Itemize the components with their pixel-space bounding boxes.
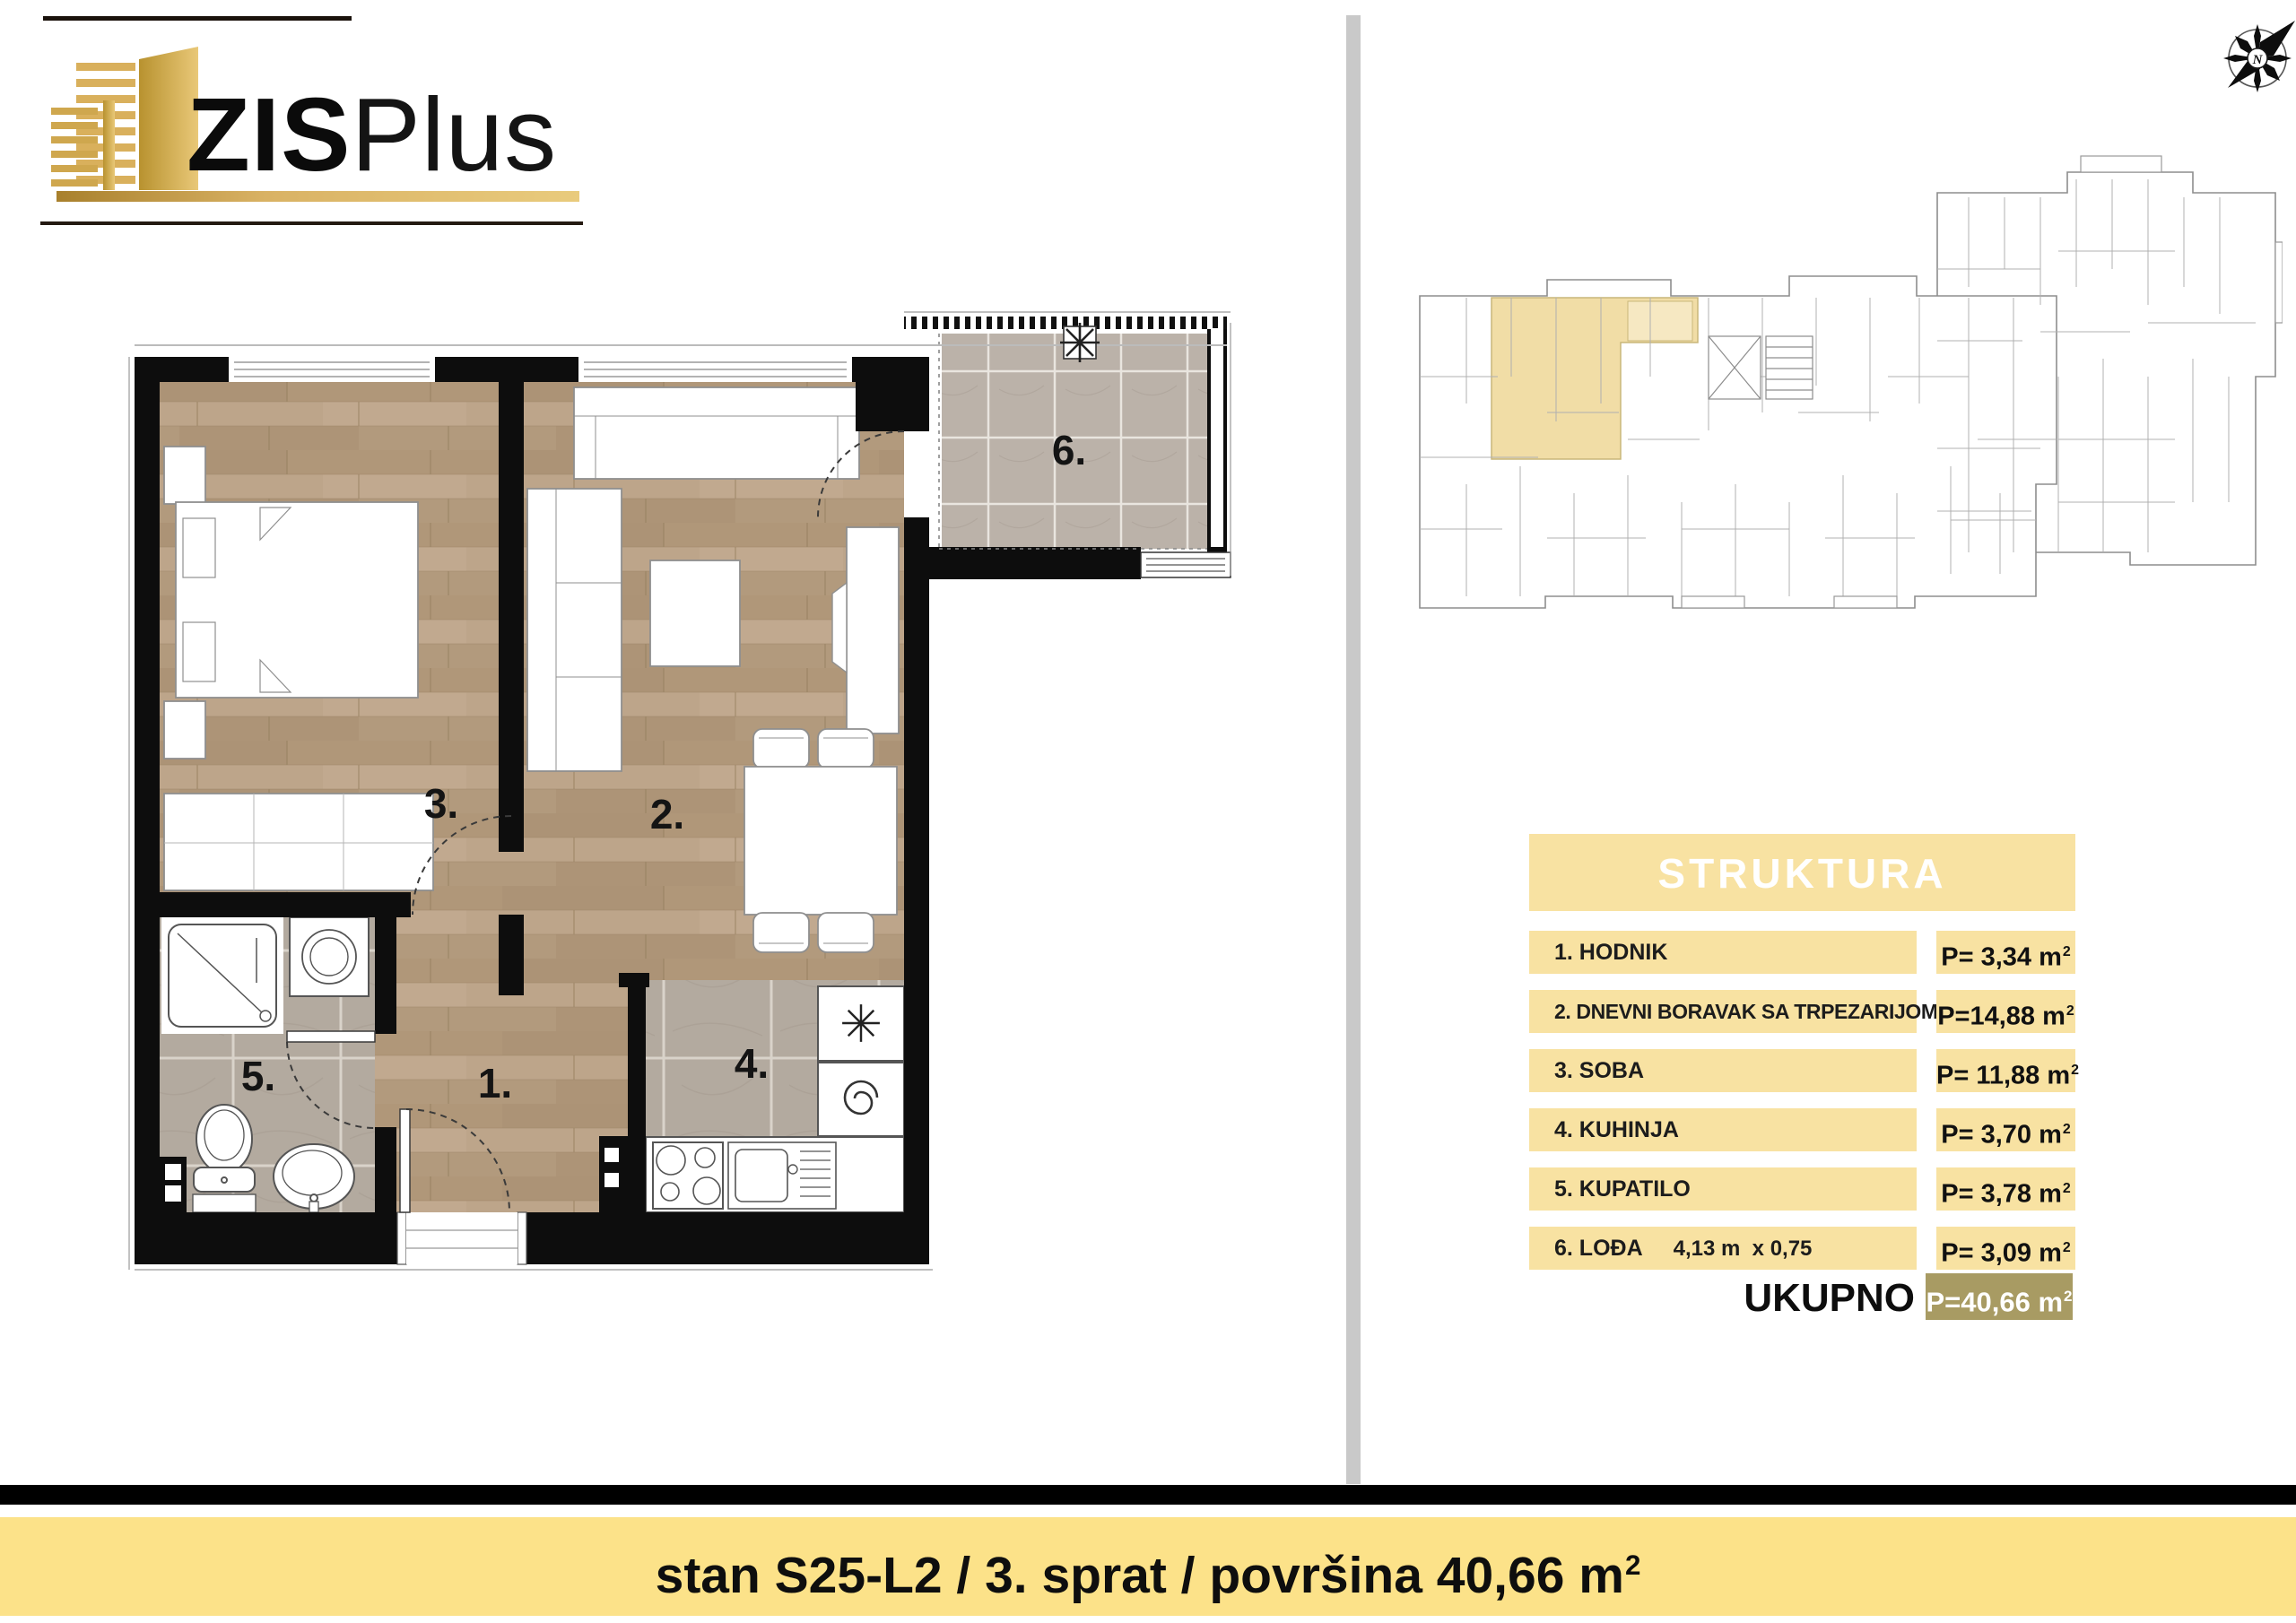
buildings-logo-icon (49, 45, 204, 192)
row-value-text: P= 3,09 m (1941, 1239, 2062, 1268)
section-divider (1346, 15, 1361, 1484)
row-value-kupatilo: P= 3,78 m2 (1936, 1167, 2075, 1211)
total-value: P=40,66 m2 (1926, 1273, 2073, 1320)
logo-zis-text: ZIS (187, 76, 351, 193)
row-value-sup: 2 (2063, 1240, 2071, 1255)
room-label-kitchen: 4. (735, 1040, 769, 1087)
row-label-kuhinja: 4. KUHINJA (1529, 1108, 1917, 1151)
compass-north-letter: N (2252, 53, 2264, 67)
logo-plus-text: Plus (351, 76, 557, 193)
bottom-banner: stan S25-L2 / 3. sprat / površina 40,66 … (0, 1517, 2296, 1616)
bottom-black-bar (0, 1485, 2296, 1505)
room-label-bedroom: 3. (424, 780, 458, 827)
row-label-soba: 3. SOBA (1529, 1049, 1917, 1092)
row-value-sup: 2 (2066, 1003, 2074, 1019)
compass-icon: N (2208, 9, 2296, 108)
row-value-sup: 2 (2071, 1063, 2079, 1078)
row-value-sup: 2 (2063, 1181, 2071, 1196)
row-value-lodja: P= 3,09 m2 (1936, 1227, 2075, 1270)
row-value-kuhinja: P= 3,70 m2 (1936, 1108, 2075, 1151)
row-label-dnevni: 2. DNEVNI BORAVAK SA TRPEZARIJOM (1529, 990, 1917, 1033)
row-label-lodja: 6. LOĐA4,13 m x 0,75 (1529, 1227, 1917, 1270)
row-value-sup: 2 (2063, 944, 2071, 959)
row-value-text: P= 3,34 m (1941, 943, 2062, 972)
row-value-hodnik: P= 3,34 m2 (1936, 931, 2075, 974)
brochure-page: ZISPlus N (0, 0, 2296, 1623)
row-value-text: P= 11,88 m (1936, 1062, 2070, 1090)
room-label-loggia: 6. (1052, 427, 1086, 473)
room-label-living: 2. (650, 791, 684, 838)
row-label-kupatilo: 5. KUPATILO (1529, 1167, 1917, 1211)
loggia-dimension: 4,13 m x 0,75 (1674, 1237, 1813, 1261)
logo-thin-rule (40, 221, 583, 225)
row-value-text: P= 3,78 m (1941, 1180, 2062, 1209)
total-label: UKUPNO (1529, 1275, 1915, 1322)
apartment-floorplan: 1. 2. 3. 4. 5. 6. (126, 305, 1265, 1273)
row-label-hodnik: 1. HODNIK (1529, 931, 1917, 974)
room-label-bathroom: 5. (241, 1053, 275, 1099)
room-label-hallway: 1. (478, 1060, 512, 1107)
apartment-summary-text: stan S25-L2 / 3. sprat / površina 40,66 … (656, 1547, 1624, 1604)
row-value-soba: P= 11,88 m2 (1936, 1049, 2075, 1092)
struktura-title: STRUKTURA (1529, 834, 2075, 911)
logo-wordmark: ZISPlus (187, 82, 557, 187)
apartment-summary-sup: 2 (1625, 1549, 1640, 1581)
row-value-text: P= 3,70 m (1941, 1121, 2062, 1150)
building-overview-plan (1413, 108, 2283, 610)
row-label-text: 6. LOĐA (1554, 1236, 1643, 1261)
row-value-text: P=14,88 m (1937, 1002, 2066, 1031)
total-value-sup: 2 (2064, 1288, 2072, 1305)
logo-top-rule (43, 16, 352, 21)
logo-gold-underline (57, 191, 579, 202)
struktura-table: STRUKTURA 1. HODNIK P= 3,34 m2 2. DNEVNI… (1529, 834, 2078, 1323)
total-value-text: P=40,66 m (1926, 1286, 2063, 1317)
row-value-dnevni: P=14,88 m2 (1936, 990, 2075, 1033)
row-value-sup: 2 (2063, 1122, 2071, 1137)
bedroom-furniture (164, 447, 433, 890)
apartment-summary: stan S25-L2 / 3. sprat / površina 40,66 … (0, 1517, 2296, 1623)
logo: ZISPlus (0, 0, 628, 233)
